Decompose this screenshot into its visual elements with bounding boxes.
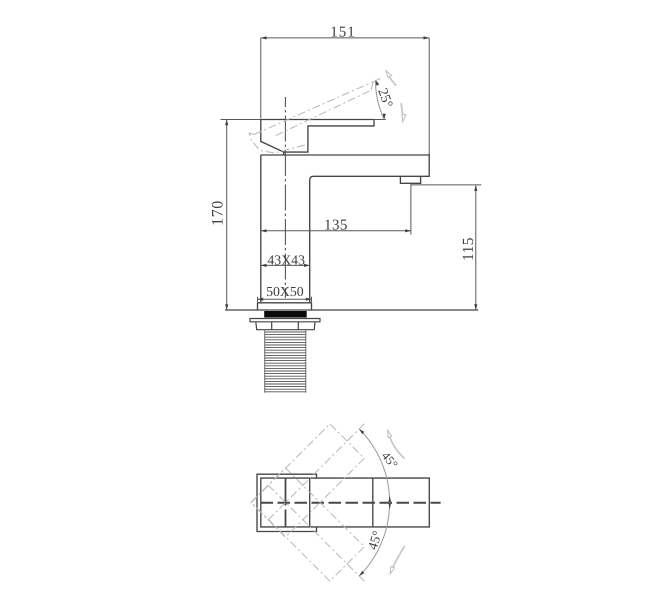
- svg-text:43X43: 43X43: [267, 252, 305, 267]
- svg-text:170: 170: [209, 200, 226, 226]
- svg-text:135: 135: [324, 217, 348, 233]
- svg-text:151: 151: [330, 25, 356, 41]
- svg-text:45°: 45°: [379, 449, 401, 471]
- svg-text:45°: 45°: [365, 529, 385, 552]
- svg-text:115: 115: [460, 237, 477, 261]
- svg-text:25°: 25°: [374, 86, 395, 110]
- svg-text:50X50: 50X50: [266, 284, 304, 299]
